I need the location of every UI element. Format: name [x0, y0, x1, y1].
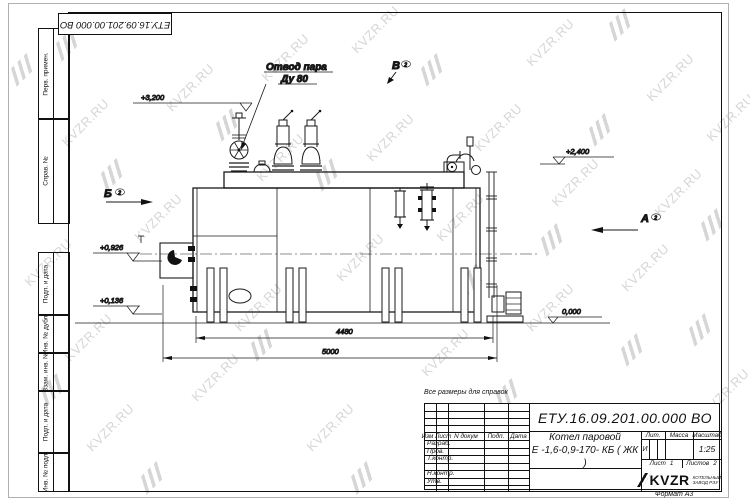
scale-label: Масштаб [693, 431, 721, 439]
svg-text:Ду 80: Ду 80 [280, 74, 308, 85]
elevation-3200: +3,200 [141, 93, 165, 102]
dim-5000: 5000 [322, 347, 340, 356]
steam-outlet-callout: Отвод пара Ду 80 [241, 62, 333, 150]
section-v: В 2 [387, 60, 411, 84]
svg-text:2: 2 [117, 190, 121, 196]
burner-icon [167, 250, 182, 265]
elevation-2400: +2,400 [566, 147, 590, 156]
kvzr-stripes-icon [637, 473, 651, 487]
kvzr-logo-text: KVZR [650, 472, 690, 488]
sheet-cell: Лист1 [641, 459, 682, 468]
mass-label: Масса [665, 431, 693, 439]
col-izm-list: Изм Лист [425, 432, 448, 440]
company-logo-cell: KVZR КОТЕЛЬНЫЙЗАВОД РЭУ [641, 468, 721, 491]
steam-outlet-valve [229, 113, 249, 171]
row-razrab: Разраб. [425, 440, 448, 448]
boiler-body [193, 188, 480, 312]
row-tkontr: Т.контр. [425, 455, 448, 463]
format-label: Формат А3 [655, 491, 693, 498]
boiler-supports [207, 268, 481, 322]
title-line-2: Е -1,6-0,9-170- КБ ( ЖК ) [529, 444, 641, 470]
col-podp: Подп. [484, 432, 508, 440]
manhole-oval [229, 289, 251, 303]
title-block: Изм Лист N докум Подп. Дата Разраб. Пров… [424, 403, 720, 490]
drawing-sheet: KVZR.RUKVZR.RUKVZR.RUKVZR.RUKVZR.RUKVZR.… [0, 0, 750, 500]
svg-text:2: 2 [653, 215, 657, 221]
safety-valve-2 [300, 110, 322, 170]
row-utv: Утв. [425, 478, 448, 486]
lit-label: Лит. [641, 431, 665, 439]
elevation-0000: 0,000 [562, 307, 582, 316]
col-ndoc: N докум [448, 432, 484, 440]
section-a: А 2 [591, 213, 661, 233]
svg-text:2: 2 [403, 62, 407, 68]
downcomer-pipe [486, 172, 497, 298]
burner-unit [138, 236, 197, 302]
drawing-title-cell: Котел паровой Е -1,6-0,9-170- КБ ( ЖК ) [529, 432, 641, 468]
svg-text:Отвод пара: Отвод пара [266, 62, 327, 73]
dim-4480: 4480 [336, 327, 354, 336]
svg-text:Б: Б [104, 188, 112, 200]
doc-number-cell: ЕТУ.16.09.201.00.000 ВО [529, 404, 721, 431]
svg-text:В: В [392, 60, 400, 72]
water-level-gauge-2 [418, 183, 436, 231]
elevation-0136: +0,136 [100, 296, 124, 305]
dome-fitting [254, 161, 270, 172]
row-prov: Пров. [425, 448, 448, 456]
svg-text:А: А [640, 213, 649, 225]
row-nkontr: Н.контр. [425, 470, 448, 478]
kvzr-logo-subtext: КОТЕЛЬНЫЙЗАВОД РЭУ [693, 475, 721, 485]
safety-valve-1 [272, 110, 294, 170]
sheets-cell: Листов2 [682, 459, 721, 468]
reference-note: Все размеры для справок [424, 389, 508, 396]
water-level-gauge-1 [394, 188, 406, 229]
steam-drum-platform [224, 172, 464, 188]
elevation-0926: +0,926 [100, 243, 124, 252]
section-b: Б 2 [104, 188, 153, 205]
feed-pump-unit [487, 292, 523, 322]
col-data: Дата [508, 432, 529, 440]
elevation-marks [93, 103, 614, 323]
title-line-1: Котел паровой [549, 431, 621, 444]
lit-value: И [641, 439, 649, 459]
scale-value: 1:25 [693, 439, 721, 459]
